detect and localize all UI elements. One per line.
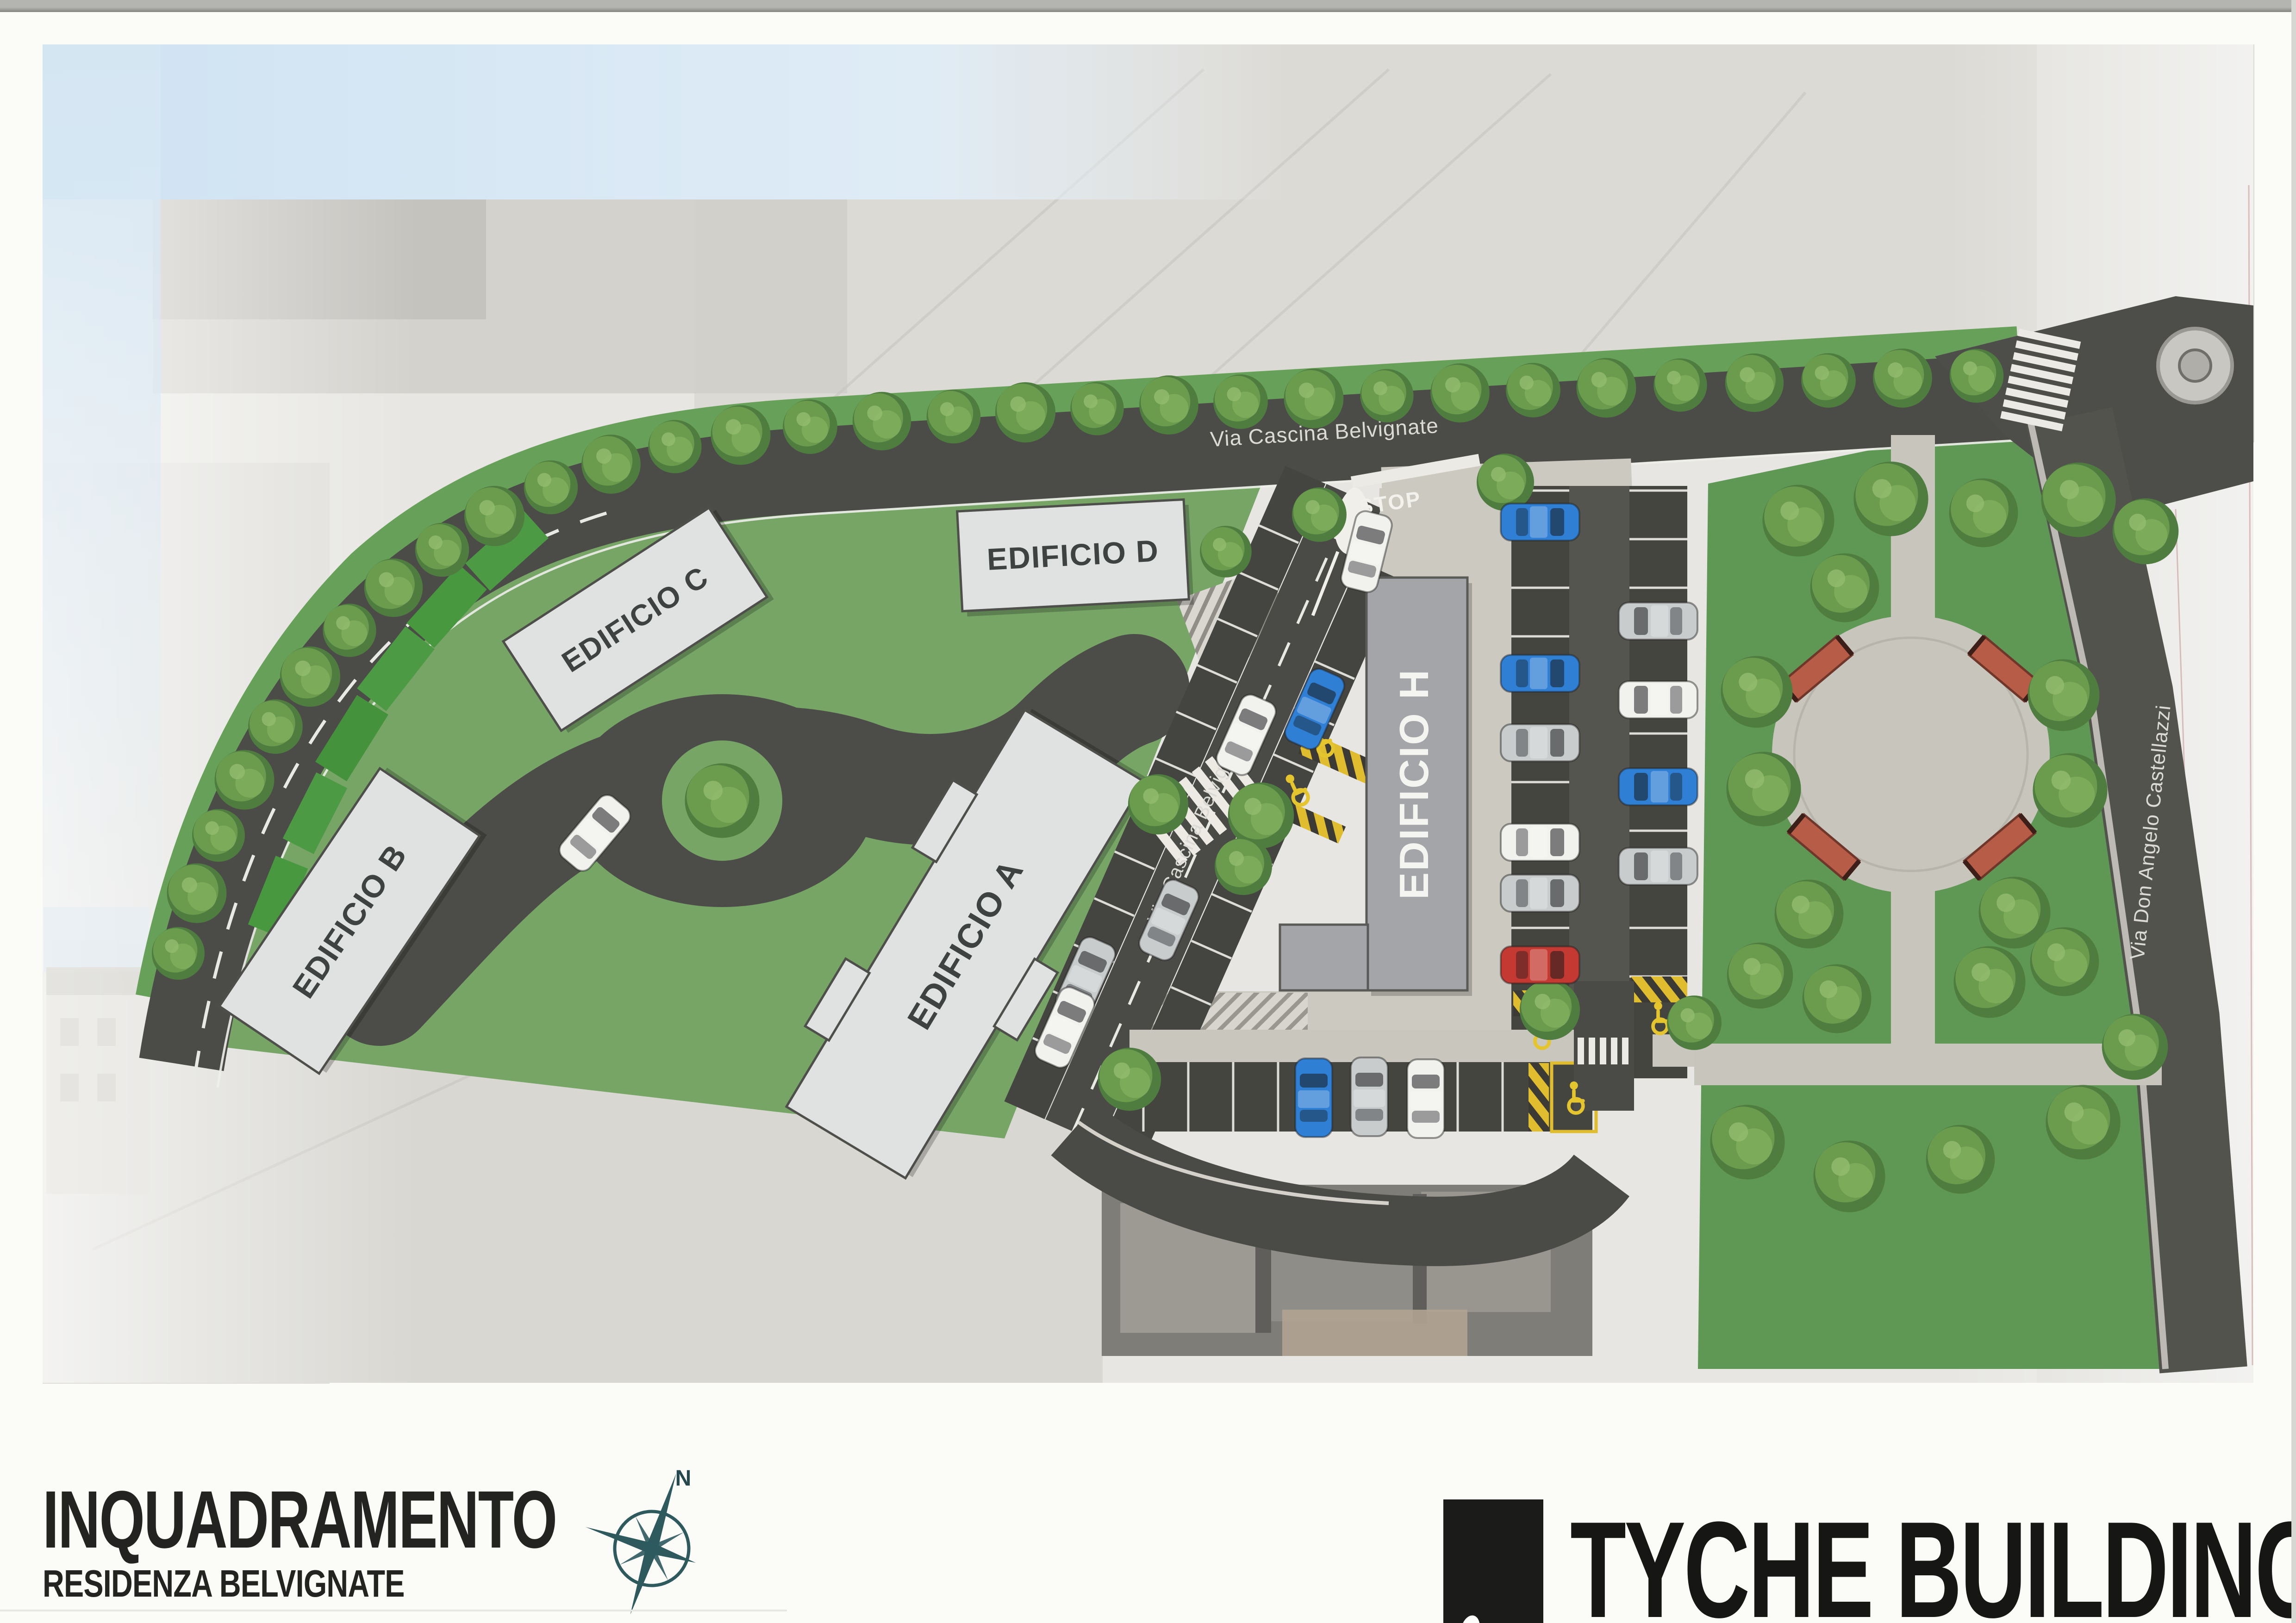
tree: [248, 699, 303, 754]
car: [1501, 504, 1579, 541]
tree: [2102, 1014, 2168, 1080]
car: [1501, 946, 1579, 983]
car: [1407, 1059, 1444, 1138]
tree: [192, 809, 245, 862]
car: [1501, 724, 1579, 761]
tree: [1810, 553, 1879, 622]
tree: [1098, 1048, 1161, 1111]
tree: [1360, 369, 1413, 422]
tree: [2030, 927, 2099, 996]
car: [1619, 848, 1697, 885]
tree: [2046, 1085, 2120, 1159]
compass-rose-icon: N: [582, 1466, 740, 1623]
building-d: EDIFICIO D: [957, 499, 1194, 617]
tree: [711, 405, 771, 465]
brand-logo: [1443, 1499, 1543, 1623]
tree: [1070, 382, 1123, 435]
tree: [1430, 363, 1490, 423]
tree: [1506, 363, 1560, 417]
tree: [1520, 980, 1580, 1040]
tree: [1801, 353, 1856, 408]
tree: [1653, 358, 1707, 411]
tree: [1926, 1125, 1995, 1194]
tree: [1292, 487, 1347, 542]
tree: [1128, 774, 1188, 834]
tree: [364, 559, 423, 617]
tree: [1213, 374, 1268, 429]
tree: [783, 399, 837, 454]
tree: [280, 647, 340, 707]
tree: [1721, 656, 1793, 728]
tree: [1950, 349, 2004, 403]
tree: [1710, 1105, 1784, 1179]
tree: [1727, 943, 1793, 1009]
scan-edge-right: [2291, 0, 2296, 1623]
tree: [1853, 461, 1928, 536]
tree: [995, 382, 1055, 442]
building-label-h: EDIFICIO H: [1391, 668, 1437, 899]
tree: [927, 390, 981, 444]
sky-band: [43, 44, 1292, 199]
tree: [323, 603, 376, 657]
car: [1619, 681, 1697, 718]
tree: [152, 927, 205, 980]
tree: [1814, 1141, 1885, 1213]
tree: [685, 763, 759, 838]
tree: [215, 750, 275, 810]
tree: [1803, 964, 1872, 1033]
tree: [415, 523, 469, 577]
page-subtitle: RESIDENZA BELVIGNATE: [43, 1564, 599, 1603]
scanned-sheet: STOP EDIFICIO B EDIFICIO C EDIFICIO D ED…: [0, 0, 2296, 1623]
roundabout: [2158, 329, 2232, 403]
car: [1619, 768, 1697, 805]
tree: [2028, 659, 2100, 731]
tree: [2033, 753, 2107, 827]
tree: [1284, 369, 1344, 429]
page-title: INQUADRAMENTO: [43, 1479, 556, 1561]
tree: [464, 486, 524, 546]
tree: [1726, 752, 1801, 826]
site-plan-drawing: STOP EDIFICIO B EDIFICIO C EDIFICIO D ED…: [0, 0, 2296, 1623]
tree: [1215, 838, 1272, 895]
logo-dot-icon: [1458, 1613, 1483, 1623]
tree: [167, 864, 227, 923]
tree: [1979, 877, 2051, 949]
tree: [853, 392, 911, 450]
tree: [1763, 485, 1834, 557]
car: [1619, 603, 1697, 640]
car: [1351, 1057, 1388, 1136]
tree: [1200, 526, 1252, 578]
ghost-building-photo: [44, 907, 149, 1194]
tree: [1477, 454, 1534, 511]
car: [1501, 875, 1579, 912]
tree: [2113, 498, 2179, 565]
scan-fold-line: [0, 1610, 787, 1611]
tree: [581, 435, 641, 494]
tree: [524, 460, 578, 515]
tree: [1873, 348, 1932, 408]
tree: [1949, 479, 2018, 547]
tree: [1725, 354, 1784, 412]
car: [1501, 824, 1579, 861]
scan-edge-top: [0, 0, 2296, 12]
compass-north-label: N: [675, 1466, 692, 1491]
tree: [648, 420, 701, 473]
tree: [1139, 375, 1198, 435]
car: [1295, 1058, 1332, 1137]
car: [1501, 655, 1579, 692]
tree: [1577, 358, 1636, 418]
brand-name: TYCHE BUILDING: [1570, 1501, 2296, 1623]
tree: [1775, 880, 1844, 949]
tree: [2041, 462, 2115, 537]
tree: [1954, 946, 2026, 1018]
tree: [1667, 995, 1722, 1050]
